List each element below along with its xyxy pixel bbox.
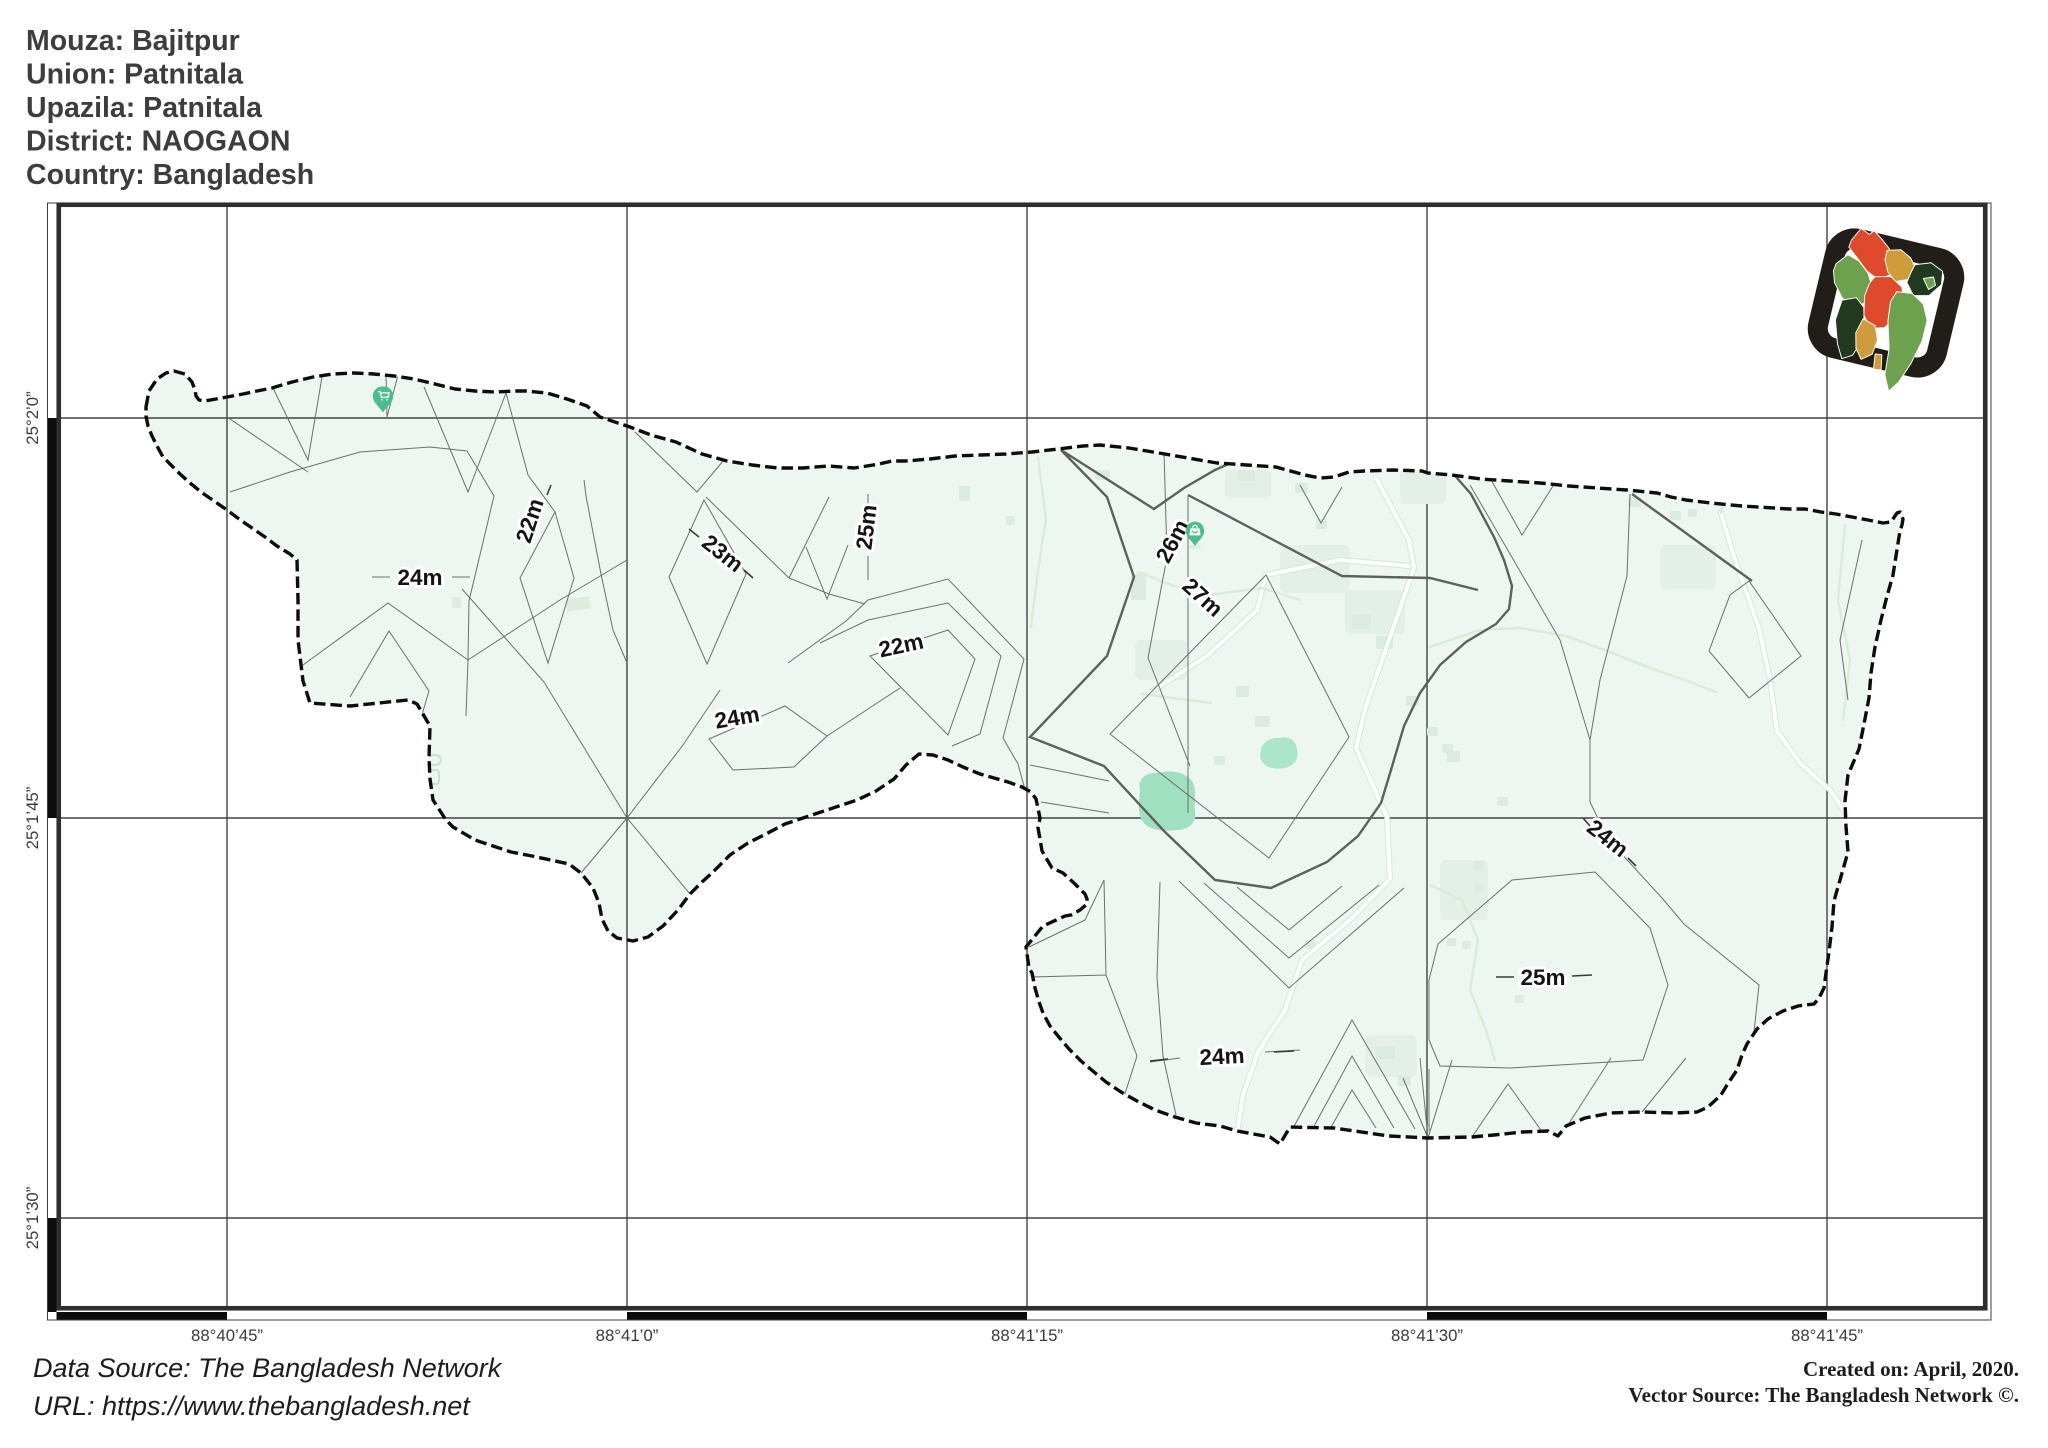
svg-text:88°40’45”: 88°40’45”: [191, 1326, 263, 1345]
svg-text:88°41’45”: 88°41’45”: [1791, 1326, 1863, 1345]
svg-text:Data Source: The Bangladesh Ne: Data Source: The Bangladesh Network: [33, 1353, 503, 1383]
svg-text:88°41’0”: 88°41’0”: [596, 1326, 659, 1345]
svg-text:Mouza: Bajitpur: Mouza: Bajitpur: [26, 25, 240, 57]
svg-text:24m: 24m: [1199, 1043, 1245, 1070]
svg-text:Vector Source: The Bangladesh: Vector Source: The Bangladesh Network ©.: [1628, 1383, 2019, 1407]
svg-text:25°1’45”: 25°1’45”: [23, 787, 42, 850]
svg-text:URL: https://www.thebangladesh: URL: https://www.thebangladesh.net: [33, 1391, 471, 1421]
svg-text:24m: 24m: [397, 565, 442, 590]
svg-text:Upazila: Patnitala: Upazila: Patnitala: [26, 92, 263, 124]
svg-text:Union: Patnitala: Union: Patnitala: [26, 59, 244, 91]
svg-text:88°41’30”: 88°41’30”: [1391, 1326, 1463, 1345]
svg-text:District: NAOGAON: District: NAOGAON: [26, 126, 290, 158]
svg-text:25°2’0”: 25°2’0”: [23, 391, 42, 444]
svg-text:25m: 25m: [1520, 965, 1565, 990]
svg-text:88°41’15”: 88°41’15”: [991, 1326, 1063, 1345]
svg-text:Created on: April, 2020.: Created on: April, 2020.: [1803, 1357, 2019, 1381]
svg-text:25°1’30”: 25°1’30”: [23, 1187, 42, 1250]
svg-text:Country: Bangladesh: Country: Bangladesh: [26, 159, 314, 191]
